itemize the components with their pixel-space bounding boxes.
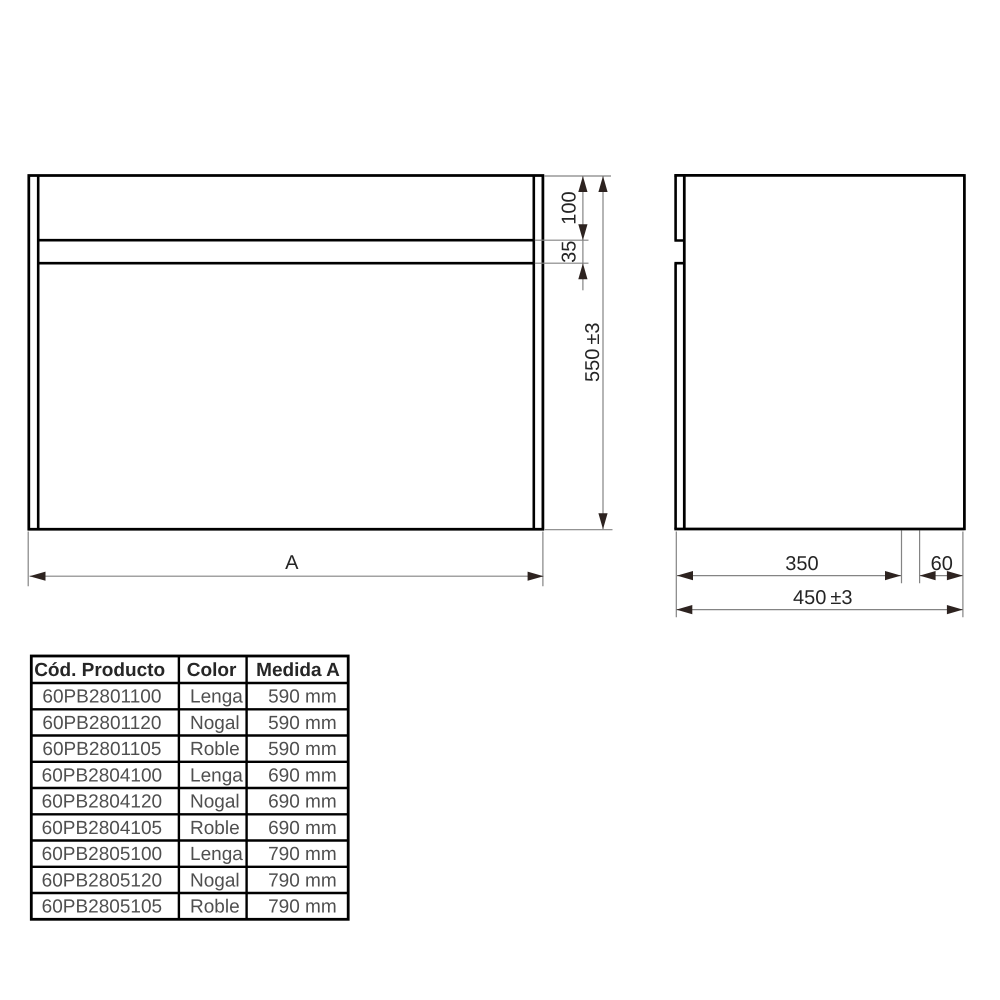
svg-text:Lenga: Lenga (190, 687, 243, 708)
svg-text:Roble: Roble (190, 739, 240, 760)
svg-text:Roble: Roble (190, 818, 240, 839)
svg-text:35: 35 (559, 241, 581, 263)
svg-text:60PB2801105: 60PB2801105 (42, 739, 161, 760)
svg-text:Color: Color (187, 660, 237, 681)
svg-text:690 mm: 690 mm (268, 765, 337, 786)
svg-text:Nogal: Nogal (190, 713, 240, 734)
svg-text:Lenga: Lenga (190, 844, 243, 865)
svg-text:350: 350 (785, 553, 818, 575)
svg-text:60PB2805105: 60PB2805105 (42, 897, 162, 918)
svg-text:60PB2804120: 60PB2804120 (42, 792, 162, 813)
svg-text:590 mm: 590 mm (268, 687, 337, 708)
svg-text:590 mm: 590 mm (268, 713, 337, 734)
svg-text:790 mm: 790 mm (268, 897, 337, 918)
svg-text:790 mm: 790 mm (268, 870, 337, 891)
svg-text:A: A (285, 552, 299, 574)
svg-text:Nogal: Nogal (190, 792, 240, 813)
svg-text:Roble: Roble (190, 897, 240, 918)
svg-text:550 ±3: 550 ±3 (582, 323, 604, 382)
svg-text:60PB2804100: 60PB2804100 (42, 765, 162, 786)
svg-text:60PB2804105: 60PB2804105 (42, 818, 162, 839)
svg-text:60PB2801120: 60PB2801120 (42, 713, 161, 734)
svg-text:Medida A: Medida A (256, 660, 340, 681)
svg-text:450 ±3: 450 ±3 (793, 587, 852, 609)
svg-text:690 mm: 690 mm (268, 792, 337, 813)
svg-text:Lenga: Lenga (190, 765, 243, 786)
svg-text:790 mm: 790 mm (268, 844, 337, 865)
svg-text:60PB2805100: 60PB2805100 (42, 844, 162, 865)
svg-text:60PB2801100: 60PB2801100 (42, 687, 161, 708)
svg-text:690 mm: 690 mm (268, 818, 337, 839)
svg-text:590 mm: 590 mm (268, 739, 337, 760)
svg-text:100: 100 (559, 191, 581, 224)
svg-text:60: 60 (931, 553, 953, 575)
svg-text:Cód. Producto: Cód. Producto (34, 660, 165, 681)
svg-text:60PB2805120: 60PB2805120 (42, 870, 162, 891)
svg-text:Nogal: Nogal (190, 870, 240, 891)
